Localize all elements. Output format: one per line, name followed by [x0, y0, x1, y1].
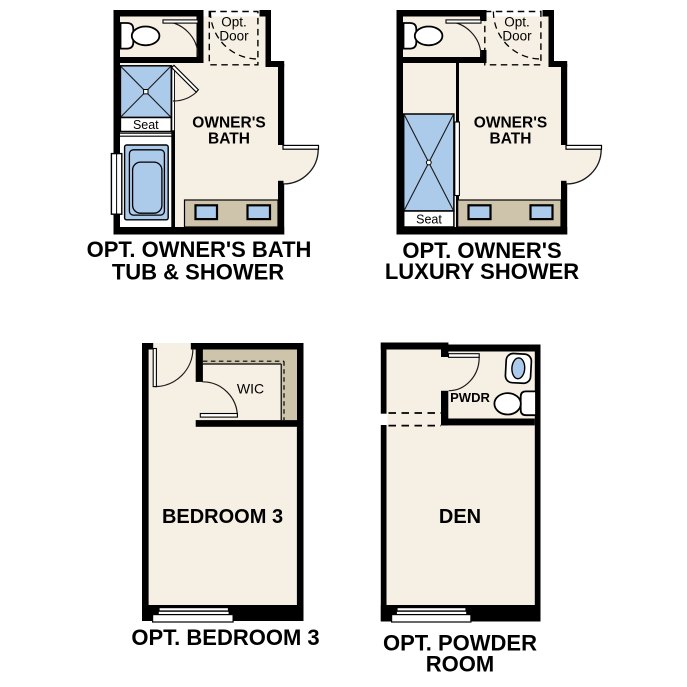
- svg-text:Opt.: Opt.: [504, 14, 530, 29]
- svg-text:TUB & SHOWER: TUB & SHOWER: [112, 260, 284, 285]
- svg-text:BEDROOM 3: BEDROOM 3: [162, 506, 283, 528]
- svg-text:DEN: DEN: [439, 506, 481, 528]
- svg-text:Seat: Seat: [416, 213, 442, 227]
- svg-text:OPT. BEDROOM 3: OPT. BEDROOM 3: [131, 625, 319, 650]
- svg-text:LUXURY SHOWER: LUXURY SHOWER: [385, 259, 579, 284]
- svg-text:Door: Door: [502, 29, 532, 44]
- svg-text:WIC: WIC: [237, 381, 264, 397]
- svg-text:BATH: BATH: [490, 131, 532, 148]
- svg-text:OWNER'S: OWNER'S: [192, 115, 265, 132]
- svg-text:Seat: Seat: [133, 118, 159, 132]
- svg-text:PWDR: PWDR: [450, 390, 490, 405]
- svg-text:Opt.: Opt.: [221, 14, 247, 29]
- svg-text:OPT. OWNER'S BATH: OPT. OWNER'S BATH: [87, 237, 312, 262]
- svg-text:ROOM: ROOM: [426, 652, 494, 677]
- svg-text:OWNER'S: OWNER'S: [474, 115, 547, 132]
- svg-text:BATH: BATH: [208, 131, 250, 148]
- svg-text:Door: Door: [219, 29, 249, 44]
